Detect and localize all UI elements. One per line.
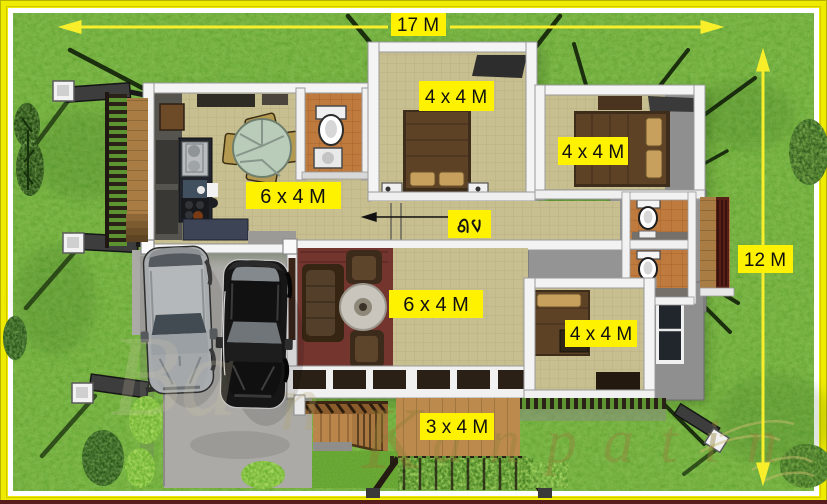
svg-text:4 x 4 M: 4 x 4 M bbox=[562, 142, 624, 163]
svg-text:17 M: 17 M bbox=[397, 15, 439, 36]
svg-text:4 x 4 M: 4 x 4 M bbox=[425, 87, 487, 108]
svg-text:12 M: 12 M bbox=[744, 250, 786, 271]
svg-text:n: n bbox=[280, 360, 320, 448]
svg-text:4 x 4 M: 4 x 4 M bbox=[570, 324, 632, 345]
svg-text:3 x 4 M: 3 x 4 M bbox=[426, 417, 488, 438]
svg-text:6 x 4 M: 6 x 4 M bbox=[260, 186, 326, 208]
svg-text:6 x 4 M: 6 x 4 M bbox=[403, 294, 469, 316]
svg-text:K: K bbox=[360, 391, 425, 488]
svg-text:Ba: Ba bbox=[110, 313, 238, 440]
